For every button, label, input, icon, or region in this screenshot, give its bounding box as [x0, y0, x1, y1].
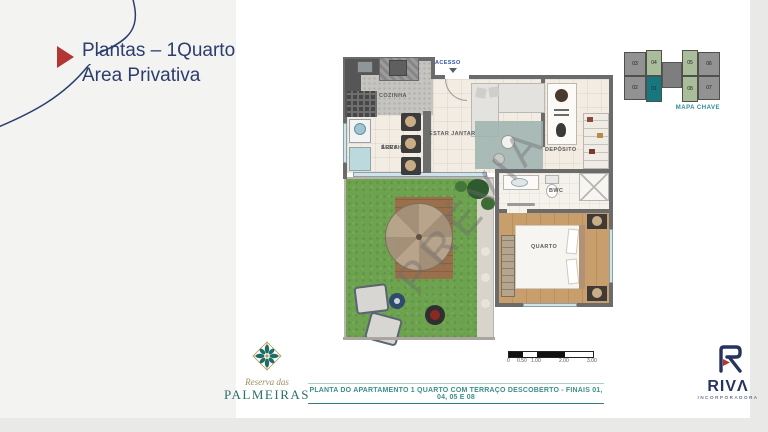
breakfast-counter — [423, 111, 431, 173]
nightstand-lamp — [592, 288, 602, 298]
scale-bar-segments — [508, 351, 594, 358]
unit-number: 04 — [651, 60, 657, 66]
scale-segment — [523, 352, 537, 357]
map-key-unit-07: 07 — [698, 76, 720, 100]
stool-seat — [405, 116, 416, 127]
stool-seat — [405, 160, 416, 171]
storage-item-round — [555, 89, 568, 102]
bedroom-side-window — [609, 229, 613, 283]
scale-tick: 3.00 — [587, 358, 597, 364]
bullet-triangle-icon — [57, 46, 74, 68]
unit-number: 01 — [651, 86, 657, 92]
bedroom-window — [523, 303, 577, 307]
unit-number: 02 — [632, 85, 638, 91]
toilet-tank — [545, 175, 559, 184]
unit-number: 05 — [687, 60, 693, 66]
breakfast-stool — [401, 157, 421, 175]
shower — [579, 173, 609, 201]
wardrobe — [501, 235, 515, 297]
page-title: Plantas – 1Quarto Área Privativa — [82, 38, 235, 88]
bathroom-label: BWC — [549, 188, 563, 194]
nightstand-lamp — [592, 216, 602, 226]
shelf-item — [587, 117, 593, 122]
shelf-item — [589, 149, 595, 154]
unit-number: 07 — [706, 85, 712, 91]
fire-pit-embers — [430, 310, 440, 320]
plan-caption: PLANTA DO APARTAMENTO 1 QUARTO COM TERRA… — [308, 383, 604, 404]
scale-segment — [509, 352, 523, 357]
washer-drum — [354, 123, 366, 135]
background-bottom-strip — [0, 418, 768, 432]
stool-seat — [405, 138, 416, 149]
stepping-stone — [481, 299, 490, 308]
map-key-unit-08: 08 — [682, 76, 698, 102]
living-label: ESTAR JANTAR — [429, 131, 475, 137]
headboard — [579, 225, 585, 289]
shelf-item — [597, 133, 603, 138]
map-key-unit-06: 06 — [698, 52, 720, 76]
wall — [435, 75, 445, 79]
riva-logo-icon — [711, 344, 745, 374]
scale-bar: 0 0.50 1.00 2.00 3.00 — [508, 351, 600, 365]
laundry-sink — [349, 147, 371, 171]
service-window — [343, 123, 347, 163]
scale-tick: 0 — [507, 358, 510, 364]
map-key-unit-01-highlighted: 01 — [646, 76, 662, 102]
towel-bar — [507, 203, 535, 206]
brand-script: Reserva das — [213, 377, 321, 387]
scale-tick: 0.50 — [517, 358, 527, 364]
scale-segment — [565, 352, 593, 357]
sofa-pillow — [475, 87, 487, 99]
unit-number: 08 — [687, 86, 693, 92]
wall — [527, 209, 609, 213]
breakfast-stool — [401, 135, 421, 153]
map-key-unit-03: 03 — [624, 52, 646, 76]
riva-logo: RIVΛ INCORPORADORA — [694, 344, 762, 400]
map-key-unit-02: 02 — [624, 76, 646, 100]
scale-tick: 2.00 — [559, 358, 569, 364]
title-line-1: Plantas – 1Quarto — [82, 38, 235, 63]
bedroom-label: QUARTO — [531, 244, 557, 250]
stepping-stone — [481, 273, 490, 282]
access-label: ACESSO — [435, 60, 461, 66]
scale-segment — [537, 352, 565, 357]
map-key-unit-04: 04 — [646, 50, 662, 76]
brand-name: PALMEIRAS — [213, 387, 321, 403]
breakfast-stool — [401, 113, 421, 131]
sofa-pillow — [488, 86, 499, 97]
shaft-equipment — [389, 60, 407, 76]
title-line-2: Área Privativa — [82, 63, 235, 88]
map-key-unit-05: 05 — [682, 50, 698, 76]
floor-plan: ACESSO COZINHA ÁREA SERVIÇO ESTAR JA — [343, 57, 613, 345]
scale-tick: 1.00 — [531, 358, 541, 364]
access-arrow-icon — [449, 68, 457, 73]
map-key: 03 04 05 06 02 01 08 07 MAPA CHAVE — [622, 48, 722, 114]
stove — [347, 91, 377, 117]
terrace-wall — [343, 337, 495, 340]
kitchen-label: COZINHA — [379, 93, 407, 99]
map-key-label: MAPA CHAVE — [652, 105, 720, 111]
developer-name: RIVΛ — [694, 379, 762, 394]
stepping-stone — [481, 247, 490, 256]
palmeiras-logo: Reserva das PALMEIRAS — [213, 341, 321, 403]
map-key-core — [662, 62, 682, 88]
unit-number: 03 — [632, 61, 638, 67]
presentation-slide: Plantas – 1Quarto Área Privativa 03 04 0… — [0, 0, 768, 432]
palmeiras-emblem-icon — [252, 341, 282, 371]
kitchen-sink — [357, 61, 373, 73]
unit-number: 06 — [706, 61, 712, 67]
decorative-curves — [0, 0, 250, 200]
developer-tagline: INCORPORADORA — [694, 395, 762, 400]
